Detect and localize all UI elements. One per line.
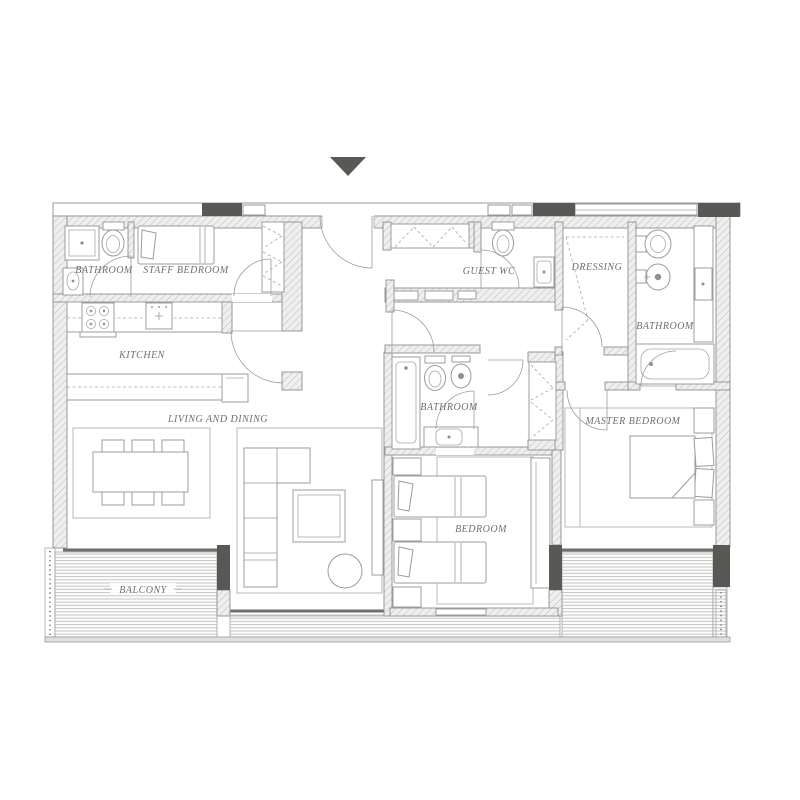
chair bbox=[102, 440, 124, 453]
window bbox=[488, 205, 510, 215]
master-bedroom-label: MASTER BEDROOM bbox=[584, 416, 680, 427]
toilet-tank bbox=[425, 356, 445, 363]
bidet-base bbox=[452, 356, 470, 362]
door-arc bbox=[90, 256, 131, 297]
stove-handle bbox=[80, 332, 116, 337]
balcony-bottom-edge bbox=[45, 637, 730, 642]
vanity-counter bbox=[424, 427, 478, 447]
foyer bbox=[320, 216, 469, 352]
bedroom-label: BEDROOM bbox=[455, 524, 507, 535]
bedroom-vestibule bbox=[488, 360, 556, 440]
toilet-tank bbox=[103, 222, 124, 230]
room-bedroom: BEDROOM bbox=[393, 457, 550, 607]
room-bathroom-middle: BATHROOM bbox=[392, 356, 478, 449]
staff-bedroom-label: STAFF BEDROOM bbox=[143, 265, 229, 276]
bathroom-left-label: BATHROOM bbox=[75, 265, 133, 276]
room-bathroom-master: BATHROOM bbox=[636, 226, 714, 386]
side-table bbox=[328, 554, 362, 588]
tv-console bbox=[372, 480, 383, 575]
room-staff-bedroom: STAFF BEDROOM bbox=[138, 222, 284, 296]
dresser bbox=[531, 458, 550, 588]
entrance-marker-icon bbox=[330, 157, 366, 176]
balcony-post bbox=[549, 545, 562, 590]
dressing-label: DRESSING bbox=[571, 262, 623, 273]
chair bbox=[162, 440, 184, 453]
stove bbox=[82, 303, 114, 332]
nightstand bbox=[694, 500, 714, 525]
living-dining-label: LIVING AND DINING bbox=[167, 414, 268, 425]
kitchen-label: KITCHEN bbox=[118, 350, 166, 361]
toilet bbox=[645, 230, 671, 258]
floor-plan-page: BALCONY bbox=[0, 0, 800, 800]
nightstand bbox=[694, 408, 714, 433]
coffee-table bbox=[293, 490, 345, 542]
toilet-tank bbox=[492, 222, 514, 230]
left-wall bbox=[53, 216, 67, 548]
window bbox=[512, 205, 532, 215]
structural-column bbox=[698, 203, 740, 217]
bathroom-middle-label: BATHROOM bbox=[420, 402, 478, 413]
nightstand bbox=[393, 519, 421, 541]
balcony-post bbox=[713, 545, 730, 587]
bathroom-master-label: BATHROOM bbox=[636, 321, 694, 332]
dining-table bbox=[93, 452, 188, 492]
nightstand bbox=[393, 587, 421, 607]
pillow bbox=[141, 230, 156, 259]
right-wall bbox=[716, 216, 730, 547]
chair bbox=[132, 440, 154, 453]
balcony-label: BALCONY bbox=[119, 585, 167, 596]
room-kitchen: KITCHEN bbox=[67, 302, 283, 402]
pillow bbox=[694, 468, 714, 497]
entrance-opening bbox=[322, 215, 374, 229]
room-master-bedroom: MASTER BEDROOM bbox=[565, 390, 714, 527]
room-dressing: DRESSING bbox=[562, 237, 624, 347]
pillow bbox=[694, 437, 714, 466]
balcony-post bbox=[217, 545, 230, 590]
structural-column bbox=[533, 203, 575, 216]
floor-plan-canvas: BALCONY bbox=[0, 0, 800, 800]
bidet-base bbox=[636, 270, 646, 283]
window-strip bbox=[575, 204, 697, 215]
chair bbox=[132, 492, 154, 505]
structural-column bbox=[202, 203, 242, 216]
chair bbox=[162, 492, 184, 505]
window bbox=[243, 205, 265, 215]
door-arc bbox=[488, 360, 523, 395]
chair bbox=[102, 492, 124, 505]
room-bathroom-left: BATHROOM bbox=[63, 222, 133, 297]
nightstand bbox=[393, 458, 421, 475]
door-arc bbox=[562, 307, 602, 347]
bathtub bbox=[636, 344, 714, 384]
guest-wc-label: GUEST WC bbox=[463, 266, 515, 277]
